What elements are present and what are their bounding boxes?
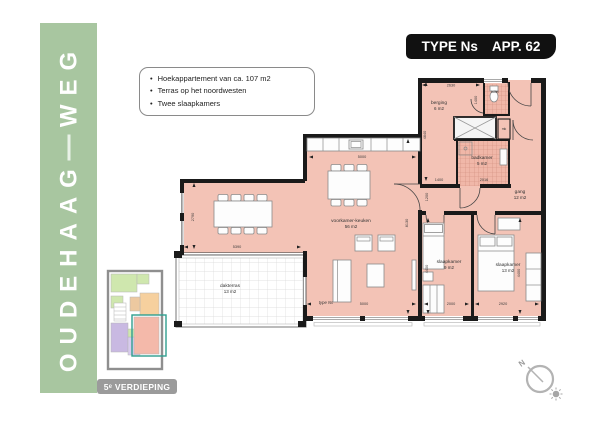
dim-badkamer-height: 1400 xyxy=(435,178,443,182)
dim-wing-height: 2790 xyxy=(191,213,195,221)
banner-dash-divider xyxy=(68,134,71,160)
page: OUDEHAAG WEG TYPE Ns APP. 62 • Hoekappar… xyxy=(0,0,600,423)
street-banner-text: OUDEHAAG WEG xyxy=(41,23,98,393)
compass-icon: N xyxy=(508,352,572,408)
street-name-part1: OUDEHAAG xyxy=(55,160,83,372)
street-name-part2: WEG xyxy=(55,43,83,127)
dim-badkamer-width: 2016 xyxy=(480,178,488,182)
label-mk: mk xyxy=(502,127,507,131)
area-badkamer: 5 m2 xyxy=(477,161,488,166)
title-badge: TYPE Ns APP. 62 xyxy=(406,34,556,59)
type-label: TYPE Ns xyxy=(422,39,478,54)
mini-floorplan xyxy=(102,267,170,377)
dim-bedroom2-width: 2920 xyxy=(499,302,507,306)
sun-icon xyxy=(550,388,563,401)
dim-living-width: 5000 xyxy=(360,302,368,306)
floor-badge: 5ᵉ VERDIEPING xyxy=(97,379,177,394)
dim-gang-opening: 1200 xyxy=(425,193,429,201)
area-voorkamer-keuken: 56 m2 xyxy=(345,224,358,229)
area-dakterras: 13 m2 xyxy=(224,289,237,294)
area-slaapkamer-2: 13 m2 xyxy=(502,268,515,273)
dim-bedroom1-height: 4400 xyxy=(425,265,429,273)
label-toilet: toilet xyxy=(491,90,498,94)
bullet-icon: • xyxy=(150,98,153,110)
floorplan-drawing: voorkamer-keuken 56 m2 berging 6 m2 toil… xyxy=(168,73,566,341)
dim-toilet-height: 1400 xyxy=(474,96,478,104)
dim-wing-width: 5390 xyxy=(233,245,241,249)
dim-living-height: 8130 xyxy=(405,219,409,227)
dim-berging-width: 2630 xyxy=(447,84,455,88)
bullet-icon: • xyxy=(150,73,153,85)
area-berging: 6 m2 xyxy=(434,106,445,111)
dim-kitchen-width: 5000 xyxy=(358,155,366,159)
apartment-label: APP. 62 xyxy=(492,39,541,54)
elevator-shaft xyxy=(454,117,496,139)
area-slaapkamer-1: 9 m2 xyxy=(444,265,455,270)
plan-type-label: type Ns xyxy=(319,300,334,305)
bullet-icon: • xyxy=(150,85,153,97)
street-banner: OUDEHAAG WEG xyxy=(40,23,97,393)
dim-bedroom2-height: 4400 xyxy=(517,269,521,277)
dim-bedroom1-width: 2000 xyxy=(447,302,455,306)
room-dakterras xyxy=(176,255,306,327)
dim-berging-height: 4640 xyxy=(423,131,427,139)
area-gang: 12 m2 xyxy=(514,195,527,200)
north-label: N xyxy=(517,358,527,369)
